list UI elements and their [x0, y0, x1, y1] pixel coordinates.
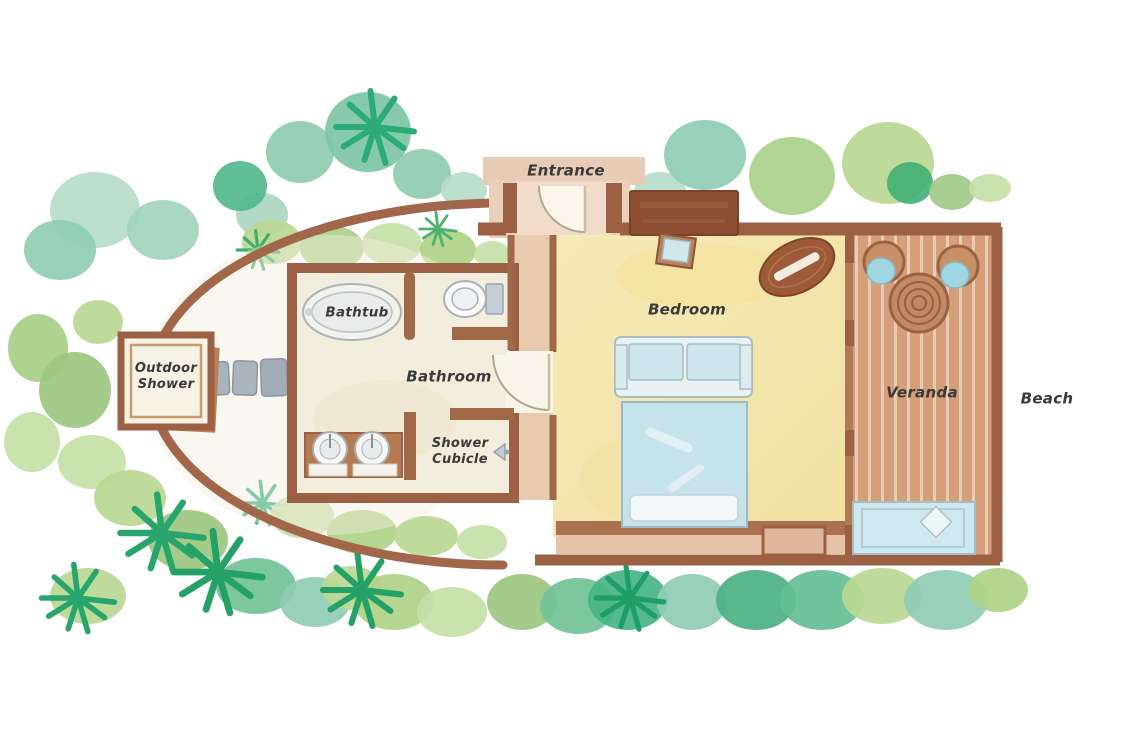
- entrance-label: Entrance: [527, 162, 605, 181]
- terrace-step: [763, 527, 825, 555]
- vanity-double-sink-icon: [305, 432, 402, 477]
- shower-cubicle-label: Shower Cubicle: [432, 436, 489, 469]
- outdoor-shower-label-line2: Shower: [135, 377, 197, 393]
- round-table-icon: [890, 274, 948, 332]
- bathtub-label: Bathtub: [325, 305, 388, 322]
- wardrobe-icon: [630, 191, 738, 235]
- bathroom-label: Bathroom: [406, 368, 491, 387]
- outdoor-shower-label: Outdoor Shower: [135, 361, 197, 394]
- beach-label: Beach: [1021, 390, 1074, 409]
- veranda-label: Veranda: [886, 384, 958, 403]
- toilet-icon: [444, 281, 503, 317]
- outdoor-shower-label-line1: Outdoor: [135, 361, 197, 377]
- bed-icon: [622, 402, 747, 527]
- partition-wall: [404, 272, 415, 340]
- sun-lounger-icon: [853, 502, 975, 554]
- deck-chair-icon: [938, 246, 978, 288]
- side-table-icon: [656, 234, 696, 269]
- bedroom-label: Bedroom: [648, 301, 726, 320]
- toilet-nook-wall: [452, 327, 514, 340]
- deck-chair-icon: [864, 242, 904, 284]
- shower-cubicle-label-line2: Cubicle: [432, 452, 489, 468]
- shower-cubicle-label-line1: Shower: [432, 436, 489, 452]
- floor-plan: Entrance Bathtub Bathroom Outdoor Shower…: [0, 0, 1127, 756]
- sofa-icon: [615, 337, 752, 397]
